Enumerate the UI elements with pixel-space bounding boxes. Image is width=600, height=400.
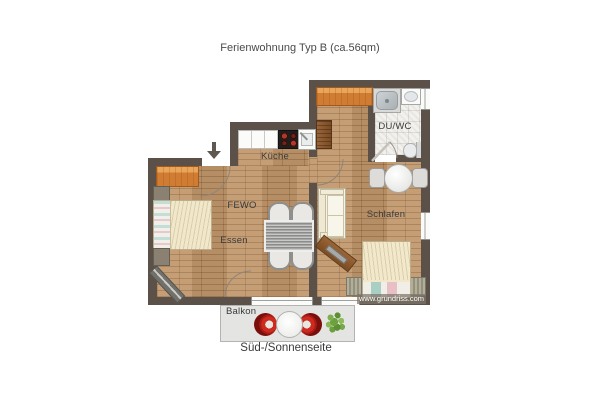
nightstand-living-bottom (153, 248, 170, 266)
kitchen-counter (238, 130, 280, 149)
wardrobe-living (156, 166, 199, 187)
chair-round-table-right (412, 168, 428, 188)
doorway-floor (309, 157, 317, 183)
window-bathroom (421, 88, 430, 110)
wall-outer-right (421, 80, 430, 305)
balcony-door-living (251, 297, 313, 305)
kitchen-sink (298, 129, 316, 150)
bathroom-sink (401, 88, 421, 105)
dining-table (264, 220, 314, 252)
round-table (384, 164, 413, 193)
page-title: Ferienwohnung Typ B (ca.56qm) (0, 42, 600, 54)
window-bedroom-bottom (321, 297, 360, 305)
label-living: FEWO (212, 200, 272, 211)
balcony-table (276, 311, 303, 338)
label-balcony: Balkon (226, 306, 268, 317)
stove (278, 130, 300, 149)
double-bed-bedroom (362, 241, 411, 298)
toilet (403, 142, 421, 158)
floor-plan: Ferienwohnung Typ B (ca.56qm) (0, 0, 600, 400)
plant (324, 311, 346, 333)
toilet-bowl (403, 143, 417, 158)
label-dining: Essen (204, 235, 264, 246)
dresser-hall (316, 120, 332, 149)
bed-pillows (154, 201, 171, 249)
shower-drain (385, 99, 389, 103)
sofa (318, 188, 346, 239)
sofa-cushion (327, 195, 344, 217)
bathroom-sink-basin (404, 91, 418, 102)
label-kitchen: Küche (245, 151, 305, 162)
entrance-arrow-icon (207, 142, 221, 160)
chair-round-table-left (369, 168, 385, 188)
arrow-head (207, 151, 221, 159)
wall-top-living (148, 158, 202, 166)
sofa-cushion (327, 215, 344, 237)
orientation-label: Süd-/Sonnenseite (186, 342, 386, 354)
label-bedroom: Schlafen (356, 209, 416, 220)
window-bedroom-right (421, 212, 430, 240)
shower (373, 88, 401, 113)
bed-blanket (363, 242, 410, 280)
wardrobe-hall (316, 87, 373, 106)
sofa-backrest (319, 191, 326, 236)
label-bathroom: DU/WC (365, 121, 425, 132)
watermark: www.grundriss.com (357, 294, 426, 304)
